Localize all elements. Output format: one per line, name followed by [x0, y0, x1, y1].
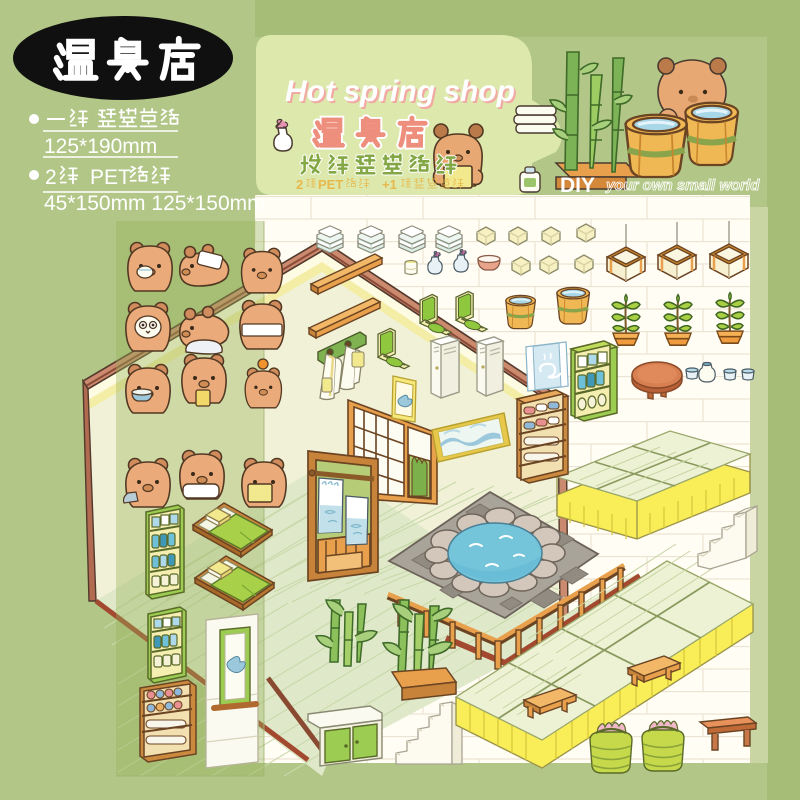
svg-text:PET: PET [90, 166, 131, 189]
svg-text:your own small world: your own small world [605, 177, 760, 194]
svg-text:Hot spring shop: Hot spring shop [285, 75, 515, 108]
svg-text:PET: PET [318, 177, 343, 192]
svg-text:45*150mm 125*150mm: 45*150mm 125*150mm [44, 192, 265, 215]
svg-text:+1: +1 [382, 177, 397, 192]
svg-text:2: 2 [45, 166, 57, 189]
svg-text:DIY: DIY [560, 174, 595, 197]
svg-text:125*190mm: 125*190mm [44, 135, 157, 158]
svg-text:2: 2 [296, 177, 303, 192]
